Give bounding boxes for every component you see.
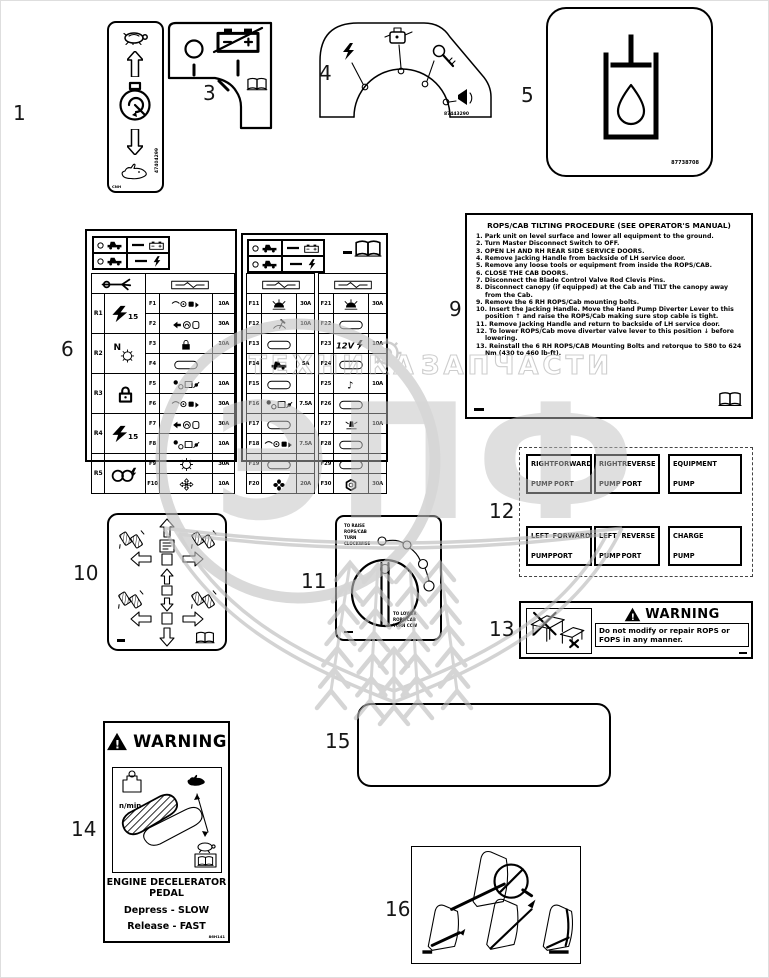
decal11-bottom-text: TO LOWER ROPS/CAB TURN CCW [393, 611, 417, 629]
manual-book-icon [718, 391, 742, 411]
fuse-id: F10 [145, 474, 160, 494]
fuse-id: F18 [247, 434, 262, 454]
fuse-header [145, 274, 234, 294]
decal11-top-text: TO RAISE ROPS/CAB TURN CLOCKWISE [344, 523, 370, 547]
callout-11[interactable]: 11 [301, 571, 326, 591]
procedure-step: 6. CLOSE THE CAB DOORS. [476, 270, 742, 277]
pedal-text-block: ENGINE DECELERATOR PEDAL Depress - SLOW … [105, 877, 228, 932]
fuse-amp [297, 414, 315, 434]
fuse-amp [297, 334, 315, 354]
fuse-icon-pill [334, 314, 369, 334]
fuse-icon-cluster1 [160, 294, 213, 314]
fuse-id: F6 [145, 394, 160, 414]
fuse-icon-cluster3 [160, 434, 213, 454]
procedure-step: 8. Disconnect canopy (if equipped) at th… [476, 284, 742, 299]
fuse-icon-beacon [334, 414, 369, 434]
fuse-header [247, 274, 315, 294]
callout-5[interactable]: 5 [521, 85, 534, 105]
turtle-icon [124, 33, 147, 45]
callout-10[interactable]: 10 [73, 563, 98, 583]
procedure-step: 7. Disconnect the Blade Control Valve Ro… [476, 277, 742, 284]
fuse-amp: 10A [213, 474, 235, 494]
fuse-id: F22 [319, 314, 334, 334]
procedure-step: 4. Remove Jacking Handle from backside o… [476, 255, 742, 262]
fuse-icon-v12: 12V [334, 334, 369, 354]
fuse-id: F5 [145, 374, 160, 394]
callout-6[interactable]: 6 [61, 339, 74, 359]
turtle-icon [198, 843, 212, 851]
procedure-step: 12. To lower ROPS/Cab move diverter valv… [476, 328, 742, 343]
throttle-dial-icon [121, 83, 150, 120]
svg-text:15: 15 [128, 432, 138, 441]
fuse-amp: 7.5A [297, 434, 315, 454]
callout-14[interactable]: 14 [71, 819, 96, 839]
fuse-id: F17 [247, 414, 262, 434]
fuse-header [319, 274, 387, 294]
fuse-id: F25 [319, 374, 334, 394]
callout-15[interactable]: 15 [325, 731, 350, 751]
decal1-part-number: 47404299 [155, 148, 160, 173]
fuse-amp [369, 394, 387, 414]
fuse-legend [92, 236, 170, 270]
operators-manual-icon [247, 78, 267, 89]
fuse-amp: 7.5A [297, 394, 315, 414]
fuse-icon-cluster2 [160, 414, 213, 434]
fuse-id: F2 [145, 314, 160, 334]
relay-id: R5 [92, 454, 105, 494]
decal4-part-number: 87443290 [444, 111, 469, 117]
fuse-id: F4 [145, 354, 160, 374]
fuse-icon-pill [160, 354, 213, 374]
pedal-depressed [123, 795, 177, 835]
warning-title: WARNING [133, 732, 227, 751]
callout-9[interactable]: 9 [449, 299, 462, 319]
fuse-amp [297, 454, 315, 474]
decal-decelerator-warning: ! WARNING n/min ENGINE DECE [103, 721, 230, 943]
warning-triangle-icon: ! [106, 732, 128, 751]
fuse-id: F14 [247, 354, 262, 374]
manual-book-icon [196, 632, 214, 643]
fuse-amp [369, 354, 387, 374]
rabbit-icon [122, 164, 146, 179]
panel-prohibited [452, 852, 532, 910]
fuse-icon-pill [262, 414, 297, 434]
procedure-step: 5. Remove any loose tools or equipment f… [476, 262, 742, 269]
fuse-icon-pill [262, 334, 297, 354]
decal-throttle-strip: 47404299 CNH [107, 21, 164, 193]
track-pictogram [119, 531, 144, 549]
fuse-id: F11 [247, 294, 262, 314]
svg-text:!: ! [115, 737, 120, 751]
fuse-id: F23 [319, 334, 334, 354]
fuse-amp [369, 314, 387, 334]
fuse-icon-pill [334, 454, 369, 474]
pump-port-box: RIGHTREVERSEPUMPPORT [594, 454, 660, 494]
fuse-icon-pill [334, 394, 369, 414]
x-mark [570, 640, 578, 647]
oil-can-icon [385, 28, 412, 43]
fuse-icon-cluster1 [262, 434, 297, 454]
fuse-icon-fan [262, 474, 297, 494]
fuse-icon-pill [334, 434, 369, 454]
fuse-table-a: F1130AF1210AF13F145AF15F167.5AF17F187.5A… [246, 273, 315, 494]
fast-slow-arrow [197, 794, 208, 832]
x-mark [534, 613, 555, 634]
fuse-icon-hex [334, 474, 369, 494]
track-pictogram [118, 591, 143, 609]
warning-triangle-icon: ! [624, 607, 641, 622]
lightning-icon [343, 43, 354, 60]
horn-icon [458, 89, 472, 105]
pump-port-boxes: RIGHTFORWARDPUMPPORTRIGHTREVERSEPUMPPORT… [526, 454, 746, 566]
relay-icon-gearN: N [105, 334, 145, 374]
fuse-id: F27 [319, 414, 334, 434]
fuse-id: F3 [145, 334, 160, 354]
pedal-pictogram: n/min [112, 767, 222, 873]
fuse-icon-cluster2 [160, 314, 213, 334]
fuse-id: F9 [145, 454, 160, 474]
decal-fuse-panel-right: F1130AF1210AF13F145AF15F167.5AF17F187.5A… [241, 233, 388, 462]
fuse-amp: 30A [213, 394, 235, 414]
engine-rpm-icon [123, 771, 141, 792]
fuse-id: F29 [319, 454, 334, 474]
warning-title: WARNING [645, 607, 720, 622]
fuse-icon-note: ♪ [334, 374, 369, 394]
arrow-down-icon [161, 598, 173, 611]
key-icon [434, 46, 456, 67]
fuse-amp [369, 454, 387, 474]
fuse-amp: 10A [213, 374, 235, 394]
off-symbol-icon [186, 41, 203, 58]
fuse-id: F13 [247, 334, 262, 354]
relay-id: R1 [92, 294, 105, 334]
callout-4[interactable]: 4 [319, 63, 332, 83]
fuse-amp: 30A [369, 474, 387, 494]
decal-diverter-dial: TO RAISE ROPS/CAB TURN CLOCKWISE TO LOWE… [335, 515, 442, 641]
callout-12[interactable]: 12 [489, 501, 514, 521]
oil-drop-icon [618, 85, 644, 124]
arrow-up-icon [127, 51, 143, 77]
track-pictogram [191, 591, 216, 609]
fuse-icon-cluster3 [160, 374, 213, 394]
svg-text:N: N [114, 343, 122, 353]
decal-console-arch: 87443290 [306, 11, 496, 123]
pump-port-box: RIGHTFORWARDPUMPPORT [526, 454, 592, 494]
fuse-id: F28 [319, 434, 334, 454]
rabbit-icon [188, 775, 205, 786]
manual-book-icon [354, 239, 382, 262]
decal1-brand: CNH [112, 184, 121, 189]
relay-id: R4 [92, 414, 105, 454]
procedure-step: 11. Remove Jacking Handle and return to … [476, 321, 742, 328]
fuse-icon-wiper [262, 314, 297, 334]
svg-text:15: 15 [128, 312, 138, 321]
fuse-icon-lamp [334, 294, 369, 314]
relay-icon-bolt15: 15 [105, 294, 145, 334]
fuse-icon-pill [262, 374, 297, 394]
pump-port-box: LEFTREVERSEPUMPPORT [594, 526, 660, 566]
fuse-id: F8 [145, 434, 160, 454]
decal-battery-disconnect [164, 19, 274, 131]
fuse-amp: 10A [369, 414, 387, 434]
fuse-icon-machine [262, 354, 297, 374]
fuse-id: F19 [247, 454, 262, 474]
panel-step-3 [543, 905, 572, 950]
arrow-up-icon [160, 519, 174, 537]
fuse-amp: 10A [369, 374, 387, 394]
fuse-amp [369, 434, 387, 454]
fuse-amp [297, 374, 315, 394]
decal-joystick-pattern [107, 513, 227, 651]
decal-rops-warning: ! WARNING Do not modify or repair ROPS o… [519, 601, 753, 659]
fuse-amp: 10A [297, 314, 315, 334]
procedure-step: 3. OPEN LH AND RH REAR SIDE SERVICE DOOR… [476, 248, 742, 255]
pump-port-box: EQUIPMENTPUMP [668, 454, 742, 494]
fuse-icon-pill [334, 354, 369, 374]
callout-3[interactable]: 3 [203, 83, 216, 103]
callout-1[interactable]: 1 [13, 103, 26, 123]
decal-glass-panels [411, 846, 581, 964]
relay-id: R2 [92, 334, 105, 374]
fuse-icon-lock [160, 334, 213, 354]
fuse-icon-cluster3 [262, 394, 297, 414]
pump-port-box: LEFTFORWARDPUMPPORT [526, 526, 592, 566]
rops-pictogram [526, 608, 592, 654]
fuse-icon-cluster1 [160, 394, 213, 414]
fuse-amp: 10A [213, 334, 235, 354]
svg-text:12V: 12V [336, 340, 355, 350]
relay-icon-bolt15: 15 [105, 414, 145, 454]
fuse-amp: 10A [369, 334, 387, 354]
relay-header [92, 274, 146, 294]
fuse-id: F7 [145, 414, 160, 434]
fuse-amp: 10A [213, 294, 235, 314]
fuse-amp: 20A [297, 474, 315, 494]
fuse-icon-gear [160, 454, 213, 474]
arrow-right-icon [183, 552, 203, 566]
fuse-table-b: F2130AF22F2312V10AF24F25♪10AF26F2710AF28… [318, 273, 387, 494]
procedure-title: ROPS/CAB TILTING PROCEDURE (SEE OPERATOR… [476, 221, 742, 230]
relay-icon-horns [105, 454, 145, 494]
decal-blank-plate [357, 703, 611, 787]
manual-book-icon [198, 857, 214, 866]
relay-fuse-table: R115F110AF230AR2NF310AF4R3F510AF630AR415… [91, 273, 235, 494]
fuse-id: F1 [145, 294, 160, 314]
fuse-id: F16 [247, 394, 262, 414]
procedure-step: 9. Remove the 6 RH ROPS/Cab mounting bol… [476, 299, 742, 306]
pump-port-box: CHARGEPUMP [668, 526, 742, 566]
fuse-amp: 30A [297, 294, 315, 314]
decal-hydraulic-oil: 87738708 [546, 7, 713, 177]
fuse-icon-pill [262, 454, 297, 474]
battery-slash [214, 28, 262, 52]
fuse-id: F26 [319, 394, 334, 414]
procedure-steps: 1. Park unit on level surface and lower … [476, 233, 742, 357]
fuse-amp: 5A [297, 354, 315, 374]
svg-text:!: ! [631, 612, 635, 622]
arrow-down-icon [127, 129, 143, 155]
fuse-legend-2 [247, 239, 325, 273]
svg-text:♪: ♪ [347, 380, 353, 390]
arrow-left-icon [131, 552, 151, 566]
fuse-amp: 30A [213, 454, 235, 474]
decal-fuse-panel-left: R115F110AF230AR2NF310AF4R3F510AF630AR415… [85, 229, 237, 462]
decal-rops-procedure: ROPS/CAB TILTING PROCEDURE (SEE OPERATOR… [465, 213, 753, 419]
relay-icon-lockbig [105, 374, 145, 414]
procedure-step: 1. Park unit on level surface and lower … [476, 233, 742, 240]
fuse-amp: 30A [369, 294, 387, 314]
fuse-icon-lamp [262, 294, 297, 314]
fuse-id: F24 [319, 354, 334, 374]
procedure-step: 13. Reinstall the 6 RH ROPS/CAB Mounting… [476, 343, 742, 358]
fuse-amp [213, 354, 235, 374]
fuse-id: F20 [247, 474, 262, 494]
fuse-id: F21 [319, 294, 334, 314]
decal-pump-ports: RIGHTFORWARDPUMPPORTRIGHTREVERSEPUMPPORT… [519, 447, 753, 577]
panel-step-1 [428, 905, 465, 950]
decal3-outline [169, 23, 271, 128]
callout-13[interactable]: 13 [489, 619, 514, 639]
fuse-amp: 30A [213, 314, 235, 334]
fuse-id: F30 [319, 474, 334, 494]
fuse-id: F15 [247, 374, 262, 394]
track-pictogram [191, 531, 216, 549]
catalog-page: 1 3 4 5 6 9 10 11 12 13 14 15 16 4740429… [0, 0, 769, 978]
fuse-icon-cross [160, 474, 213, 494]
decal5-part-number: 87738708 [671, 160, 699, 166]
panel-step-2 [487, 899, 536, 949]
fuse-amp: 10A [213, 434, 235, 454]
fuse-id: F12 [247, 314, 262, 334]
fuse-amp: 30A [213, 414, 235, 434]
callout-16[interactable]: 16 [385, 899, 410, 919]
procedure-step: 2. Turn Master Disconnect Switch to OFF. [476, 240, 742, 247]
decal14-code: 86H141 [209, 934, 225, 939]
warning-message: Do not modify or repair ROPS or FOPS in … [595, 623, 749, 647]
procedure-step: 10. Insert the Jacking Handle. Move the … [476, 306, 742, 321]
relay-id: R3 [92, 374, 105, 414]
